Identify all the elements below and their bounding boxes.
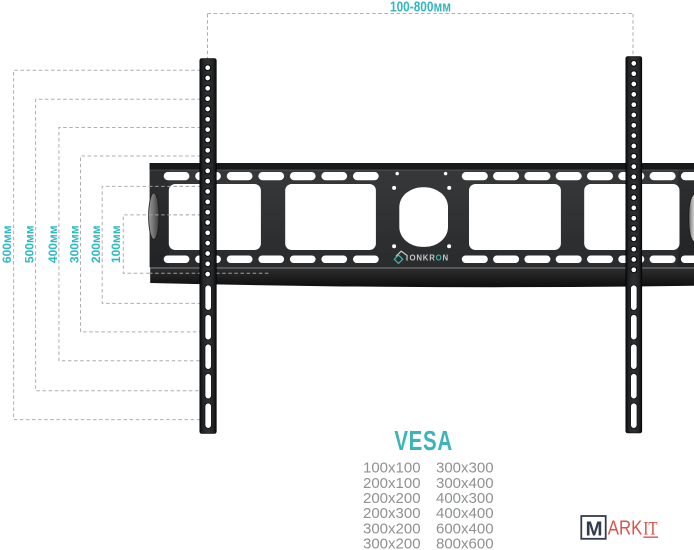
svg-text:200мм: 200мм — [89, 225, 103, 263]
svg-text:800x600: 800x600 — [436, 536, 494, 550]
svg-text:300мм: 300мм — [68, 225, 82, 263]
svg-text:100-800мм: 100-800мм — [390, 0, 451, 15]
svg-text:ARK: ARK — [608, 516, 643, 539]
svg-text:VESA: VESA — [394, 426, 453, 457]
svg-text:300x200: 300x200 — [363, 536, 421, 550]
svg-text:500мм: 500мм — [22, 225, 36, 263]
svg-text:400мм: 400мм — [46, 225, 60, 263]
svg-text:M: M — [586, 517, 603, 540]
svg-text:IT: IT — [643, 518, 657, 539]
svg-text:600мм: 600мм — [0, 225, 14, 263]
svg-text:100мм: 100мм — [109, 225, 123, 263]
svg-text:ONKRON: ONKRON — [410, 254, 449, 263]
